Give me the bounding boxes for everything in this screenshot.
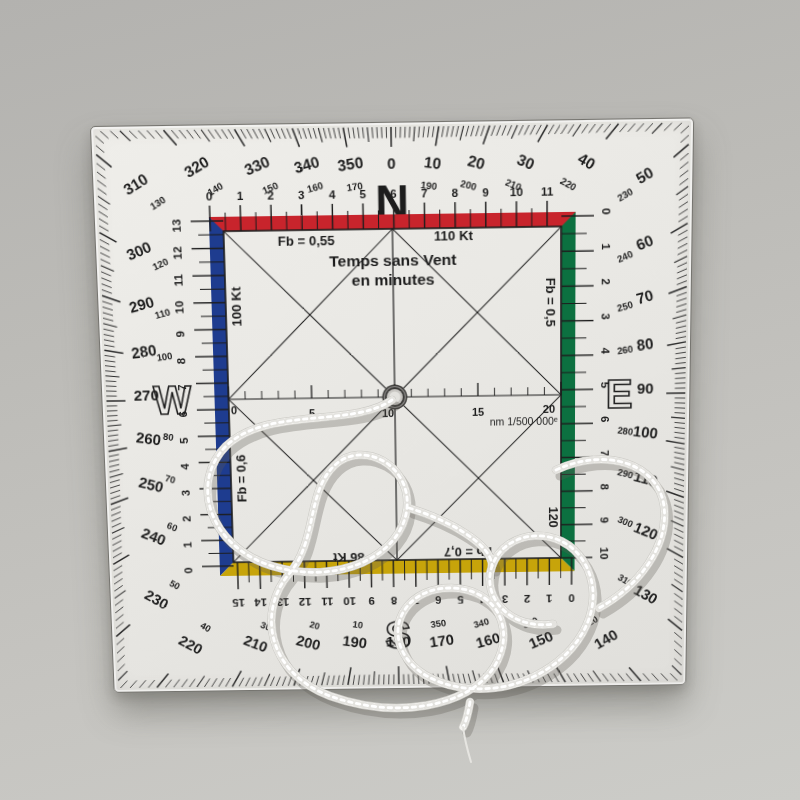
cord-strand (208, 400, 593, 708)
cord-outline (556, 459, 665, 608)
cord-shadow (560, 465, 669, 614)
cord-braid-texture (208, 400, 593, 708)
cord-string (0, 0, 800, 800)
cord-braid-highlight (208, 400, 593, 708)
photo-scene: 3201403301503401603501700101902020030210… (0, 0, 800, 800)
cord-outline (208, 400, 593, 708)
cord-shadow (212, 406, 597, 714)
